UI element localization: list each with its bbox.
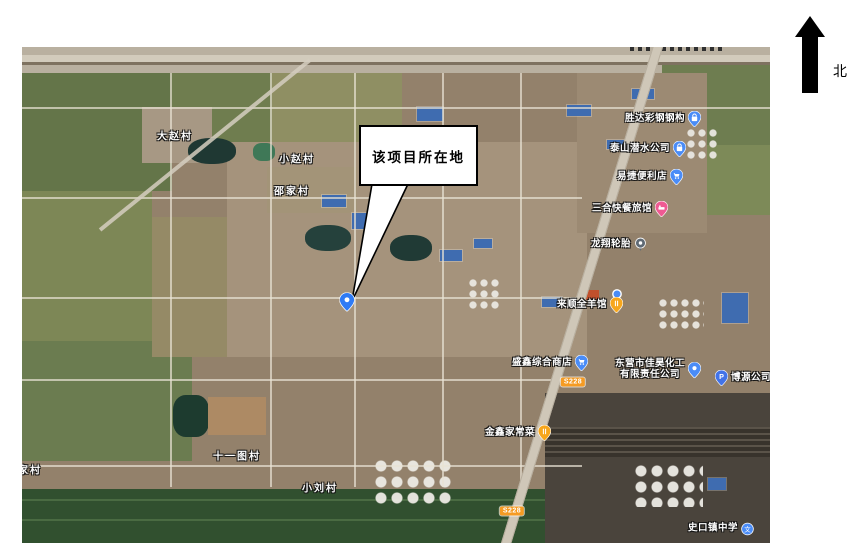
map-poi: 龙翔轮胎: [591, 238, 647, 253]
school-icon: 文: [741, 523, 754, 536]
parking-icon: P: [715, 370, 728, 386]
satellite-map: 大赵村小赵村邵家村十一图村小刘村家村胜达彩钢钢构泰山潜水公司易捷便利店三合快餐旅…: [22, 47, 770, 543]
bed-icon: [655, 201, 668, 217]
poi-label: 博源公司停车场: [731, 373, 770, 384]
poi-label: 金鑫家常菜: [485, 428, 535, 439]
poi-label: 泰山潜水公司: [610, 144, 670, 155]
food-icon: [610, 297, 623, 313]
map-poi: 泰山潜水公司: [610, 141, 686, 157]
village-label: 小赵村: [279, 151, 315, 166]
figure-page: 大赵村小赵村邵家村十一图村小刘村家村胜达彩钢钢构泰山潜水公司易捷便利店三合快餐旅…: [0, 0, 861, 557]
pin-icon: [688, 362, 701, 378]
map-poi: 盛鑫综合商店: [512, 355, 588, 371]
map-poi: 三合快餐旅馆: [592, 201, 668, 217]
road-badge: S228: [561, 378, 585, 387]
cart-icon: [670, 169, 683, 185]
food-icon: [538, 425, 551, 441]
map-poi: 来顺全羊馆: [557, 297, 623, 313]
bag-icon: [688, 111, 701, 127]
poi-label: 史口镇中学: [688, 524, 738, 535]
poi-label: 易捷便利店: [617, 172, 667, 183]
map-poi: 易捷便利店: [617, 169, 683, 185]
poi-layer: 大赵村小赵村邵家村十一图村小刘村家村胜达彩钢钢构泰山潜水公司易捷便利店三合快餐旅…: [22, 47, 770, 543]
map-poi: 史口镇中学文: [688, 523, 754, 536]
bag-icon: [673, 141, 686, 157]
poi-label: 三合快餐旅馆: [592, 204, 652, 215]
village-label: 小刘村: [302, 480, 338, 495]
project-location-callout: 该项目所在地: [359, 125, 478, 186]
poi-label: 东营市佳昊化工有限责任公司: [615, 359, 685, 381]
svg-text:P: P: [719, 372, 724, 381]
village-label: 邵家村: [274, 183, 310, 198]
callout-text: 该项目所在地: [372, 146, 465, 166]
map-poi: 金鑫家常菜: [485, 425, 551, 441]
village-label: 家村: [22, 462, 42, 477]
poi-label: 龙翔轮胎: [591, 240, 631, 251]
dot-marker-icon: [634, 238, 647, 253]
poi-label: 胜达彩钢钢构: [625, 114, 685, 125]
svg-text:文: 文: [744, 524, 751, 533]
north-arrow-head: [795, 16, 825, 37]
poi-label: 盛鑫综合商店: [512, 358, 572, 369]
map-poi: 胜达彩钢钢构: [625, 111, 701, 127]
poi-label: 来顺全羊馆: [557, 300, 607, 311]
north-arrow-shaft: [802, 36, 818, 93]
road-badge: S228: [500, 507, 524, 516]
map-poi: P博源公司停车场: [715, 370, 770, 386]
cart-icon: [575, 355, 588, 371]
village-label: 十一图村: [213, 448, 261, 463]
map-poi: 东营市佳昊化工有限责任公司: [615, 359, 701, 381]
project-pin-icon: [340, 293, 355, 312]
map-poi: [340, 293, 355, 312]
village-label: 大赵村: [157, 128, 193, 143]
north-label: 北: [833, 61, 847, 81]
